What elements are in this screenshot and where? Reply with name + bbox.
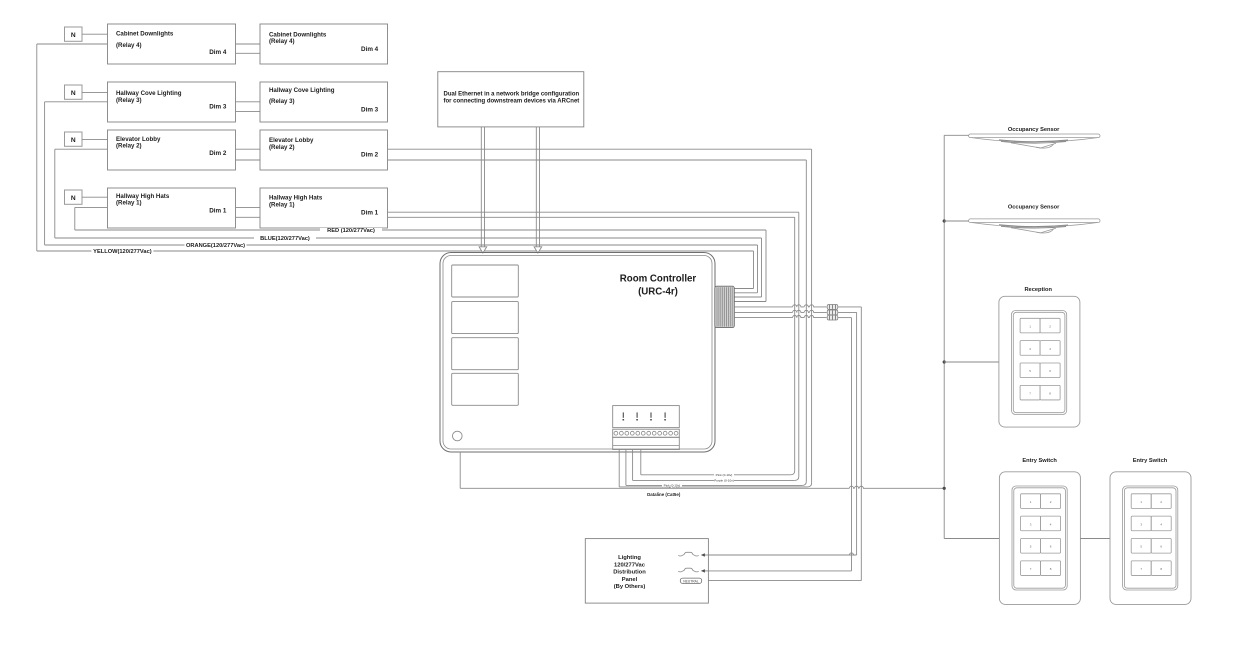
svg-text:(By Others): (By Others) xyxy=(614,584,646,590)
svg-text:for connecting downstream devi: for connecting downstream devices via AR… xyxy=(444,99,580,105)
svg-text:YELLOW(120/277Vac): YELLOW(120/277Vac) xyxy=(93,249,152,255)
svg-text:(Relay 4): (Relay 4) xyxy=(116,42,142,49)
svg-text:RED (120/277Vac): RED (120/277Vac) xyxy=(327,228,375,234)
svg-text:ORANGE(120/277Vac): ORANGE(120/277Vac) xyxy=(186,243,245,249)
svg-text:Cabinet Downlights: Cabinet Downlights xyxy=(116,30,174,37)
svg-text:NEUTRAL: NEUTRAL xyxy=(683,580,699,584)
svg-text:(Relay 4): (Relay 4) xyxy=(269,38,295,45)
svg-text:Reception: Reception xyxy=(1024,287,1052,293)
svg-text:(Relay 3): (Relay 3) xyxy=(269,98,295,105)
svg-text:(Relay 2): (Relay 2) xyxy=(269,144,295,151)
svg-text:Dim 1: Dim 1 xyxy=(361,210,379,217)
svg-text:Lighting: Lighting xyxy=(618,555,641,561)
svg-text:(URC-4r): (URC-4r) xyxy=(638,287,678,298)
svg-text:BLUE(120/277Vac): BLUE(120/277Vac) xyxy=(260,236,310,242)
svg-text:N: N xyxy=(71,32,76,39)
svg-text:(Relay 1): (Relay 1) xyxy=(269,201,295,208)
svg-text:Dim 4: Dim 4 xyxy=(361,46,379,53)
svg-text:Hallway Cove Lighting: Hallway Cove Lighting xyxy=(269,87,335,94)
svg-text:Entry Switch: Entry Switch xyxy=(1022,458,1057,464)
svg-text:N: N xyxy=(71,137,76,144)
svg-text:Distribution: Distribution xyxy=(613,570,646,576)
svg-text:(Relay 1): (Relay 1) xyxy=(116,199,142,206)
svg-text:Panel: Panel xyxy=(622,577,638,583)
svg-text:Occupancy Sensor: Occupancy Sensor xyxy=(1008,127,1060,133)
svg-text:N: N xyxy=(71,195,76,202)
svg-text:Entry Switch: Entry Switch xyxy=(1133,458,1168,464)
svg-text:Dual Ethernet in a network bri: Dual Ethernet in a network bridge config… xyxy=(444,92,580,98)
svg-text:Room Controller: Room Controller xyxy=(620,274,697,285)
svg-text:Purple (0-10v): Purple (0-10v) xyxy=(714,479,734,483)
svg-text:Dataline (Cat5e): Dataline (Cat5e) xyxy=(647,492,681,497)
svg-text:120/277Vac: 120/277Vac xyxy=(614,562,646,568)
svg-text:Dim 3: Dim 3 xyxy=(209,104,227,111)
svg-text:Dim 1: Dim 1 xyxy=(209,208,227,215)
svg-text:Occupancy Sensor: Occupancy Sensor xyxy=(1008,205,1060,211)
svg-text:Dim 3: Dim 3 xyxy=(361,106,379,113)
svg-text:Pink (0-10v): Pink (0-10v) xyxy=(664,484,681,488)
svg-text:Pink (0-10v): Pink (0-10v) xyxy=(716,473,733,477)
svg-text:(Relay 2): (Relay 2) xyxy=(116,143,142,150)
svg-text:Dim 2: Dim 2 xyxy=(209,150,227,157)
svg-text:Dim 2: Dim 2 xyxy=(361,152,379,159)
svg-text:N: N xyxy=(71,90,76,97)
svg-text:(Relay 3): (Relay 3) xyxy=(116,97,142,104)
svg-text:Dim 4: Dim 4 xyxy=(209,49,227,56)
